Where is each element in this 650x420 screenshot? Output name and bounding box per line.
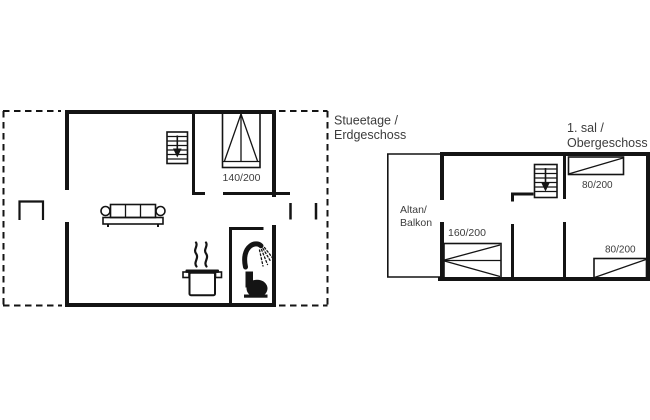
- double-bed-icon: [444, 244, 501, 279]
- stairs-down-icon: [535, 165, 558, 198]
- balcony-label-line1: Altan/: [400, 204, 427, 216]
- bed-size-label-left: 160/200: [448, 227, 486, 239]
- upper-floor-walls: [438, 152, 650, 281]
- terrace-step: [20, 202, 44, 221]
- floorplan-canvas: 140/200: [0, 0, 650, 420]
- toilet-icon: [244, 272, 268, 298]
- sofa-icon: [101, 205, 165, 228]
- floorplan-page: 140/200: [0, 0, 650, 420]
- upper-floor-title-line1: 1. sal /: [567, 121, 604, 135]
- terrace-dashed-outline: [3, 111, 328, 306]
- single-bed-icon: [569, 157, 624, 175]
- terrace-entry-marks: [291, 203, 317, 220]
- shower-icon: [245, 244, 273, 267]
- bed-size-label-right-bottom: 80/200: [605, 245, 636, 256]
- upper-floor-title-line2: Obergeschoss: [567, 136, 648, 150]
- ground-floor-title-line2: Erdgeschoss: [334, 128, 406, 142]
- balcony-label-line2: Balkon: [400, 217, 432, 229]
- cooking-pot-icon: [183, 243, 222, 296]
- bed-size-label-right-top: 80/200: [582, 180, 613, 191]
- ground-floor-title-line1: Stueetage /: [334, 114, 398, 128]
- double-bed-icon: [223, 113, 261, 168]
- ground-floor-plan: 140/200: [3, 110, 406, 307]
- single-bed-icon: [594, 259, 647, 279]
- bed-size-label-ground: 140/200: [223, 172, 261, 184]
- stairs-down-icon: [167, 132, 188, 164]
- upper-floor-plan: 80/200 80/200 160/200 Altan/ Balkon 1. s…: [388, 121, 650, 281]
